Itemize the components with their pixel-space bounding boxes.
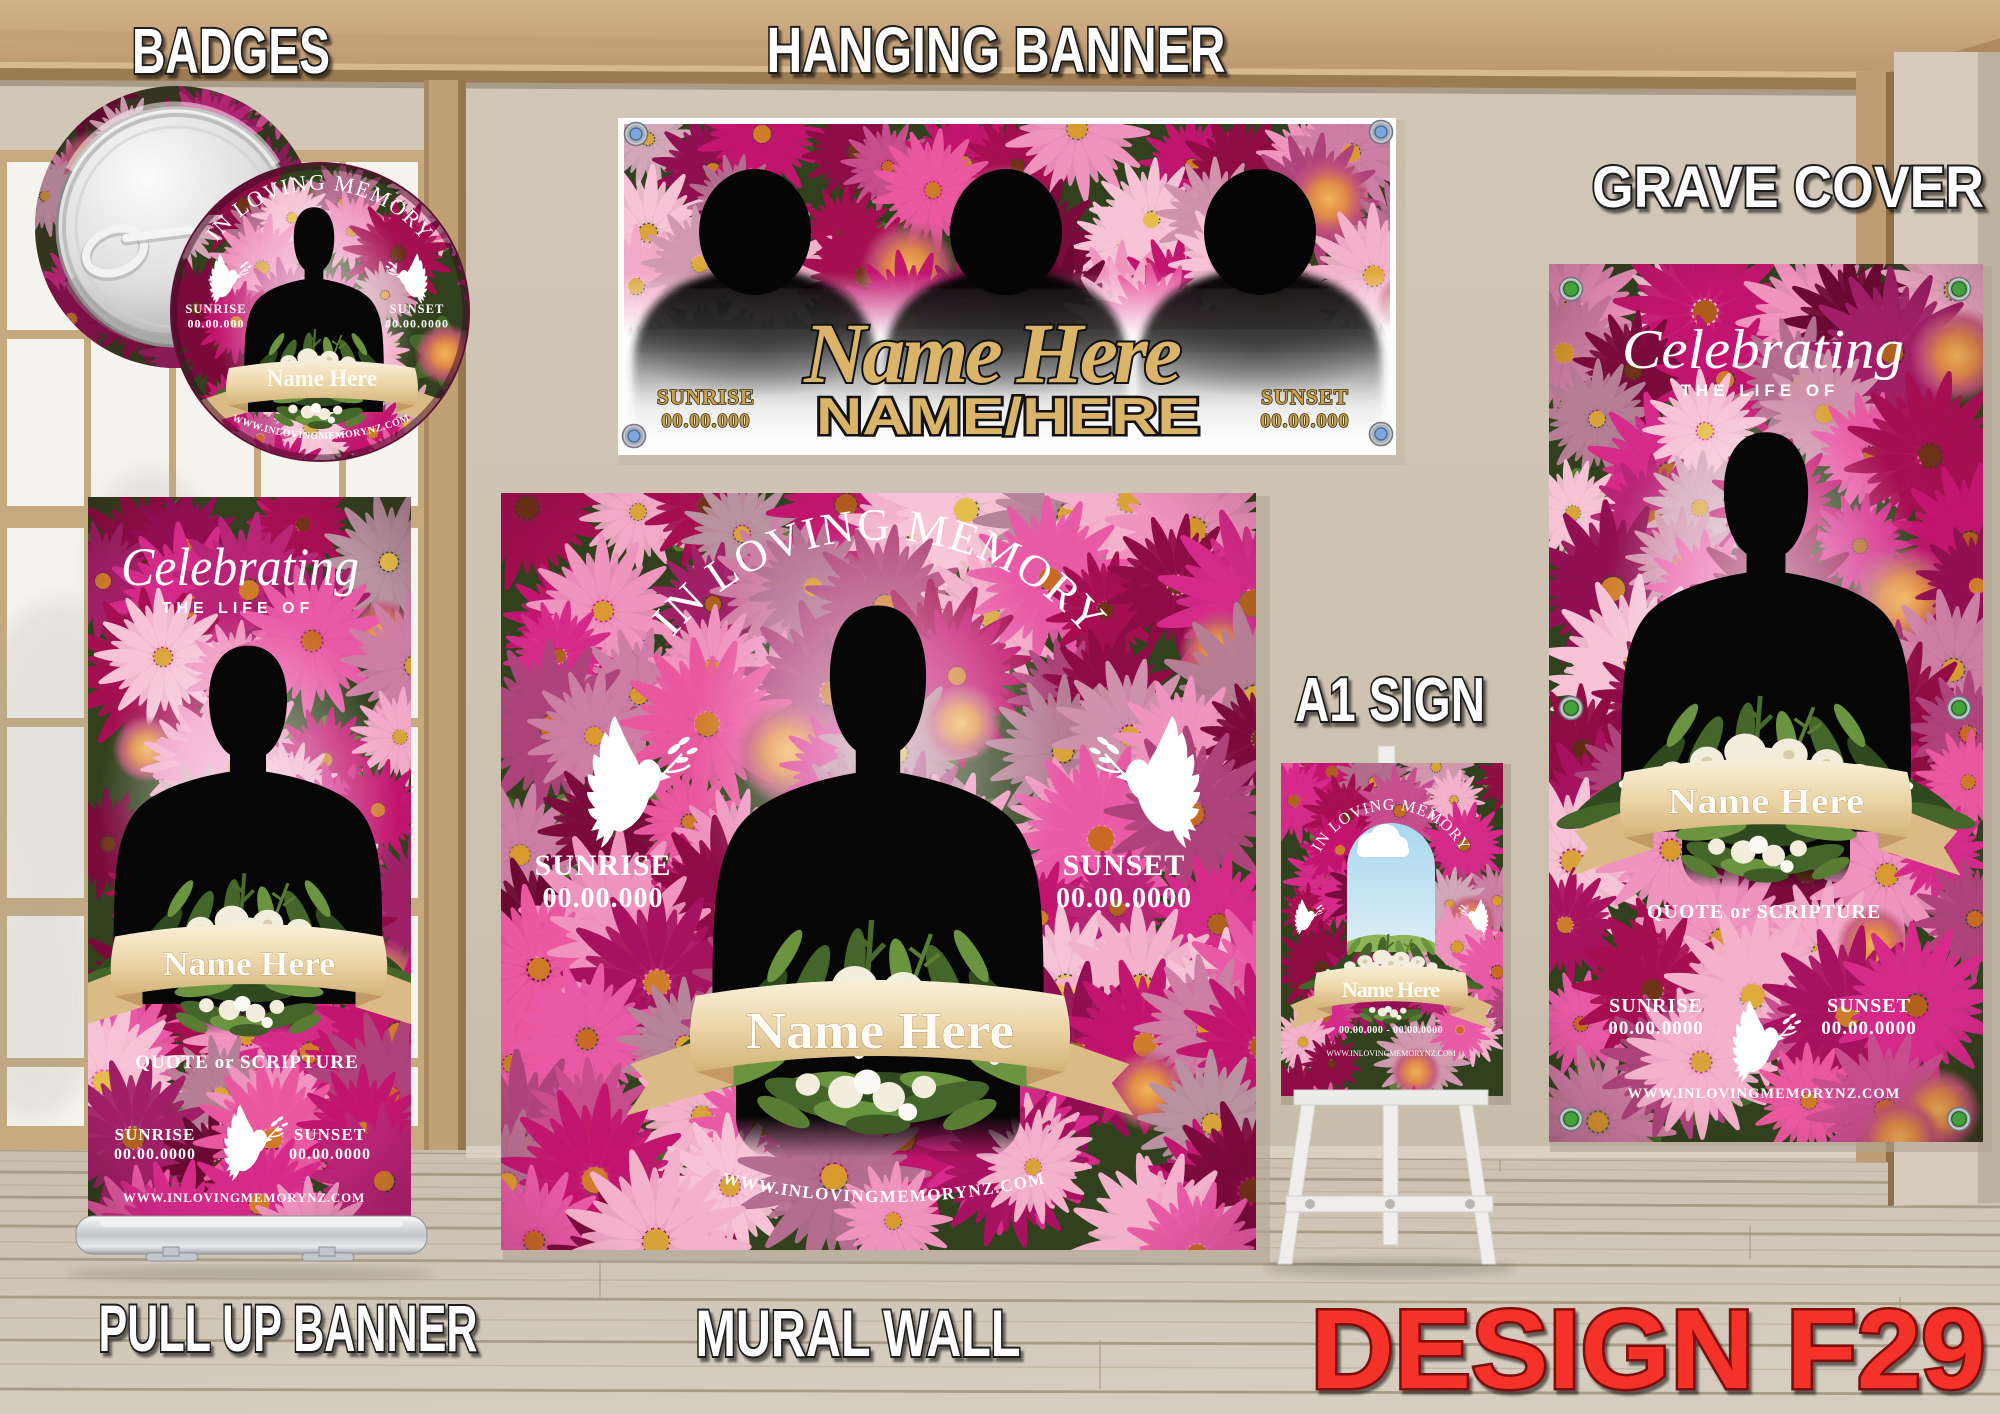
svg-text:GRAVE COVER: GRAVE COVER: [1592, 155, 1984, 220]
svg-text:SUNSET: SUNSET: [1063, 849, 1186, 882]
svg-text:Name Here: Name Here: [163, 946, 335, 983]
svg-text:Celebrating: Celebrating: [1622, 319, 1904, 381]
svg-text:PULL UP BANNER: PULL UP BANNER: [99, 1291, 478, 1365]
svg-text:BADGES: BADGES: [132, 15, 330, 87]
svg-text:00.00.0000: 00.00.0000: [1056, 883, 1192, 914]
svg-text:A1 SIGN: A1 SIGN: [1295, 666, 1485, 735]
svg-text:SUNRISE: SUNRISE: [1609, 995, 1703, 1017]
svg-text:00.00.0000: 00.00.0000: [289, 1146, 371, 1163]
svg-text:SUNRISE: SUNRISE: [185, 302, 246, 316]
svg-text:SUNRISE: SUNRISE: [534, 849, 671, 882]
svg-text:WWW.INLOVINGMEMORYNZ.COM: WWW.INLOVINGMEMORYNZ.COM: [1628, 1086, 1901, 1102]
svg-text:SUNSET: SUNSET: [1261, 385, 1349, 409]
svg-text:DESIGN F29: DESIGN F29: [1311, 1287, 1986, 1412]
svg-text:SUNRISE: SUNRISE: [115, 1125, 196, 1144]
svg-text:00.00.000: 00.00.000: [543, 883, 664, 914]
svg-text:00.00.000: 00.00.000: [1261, 410, 1350, 432]
svg-text:WWW.INLOVINGMEMORYNZ.COM: WWW.INLOVINGMEMORYNZ.COM: [1326, 1049, 1455, 1058]
svg-text:Name Here: Name Here: [267, 366, 377, 392]
svg-text:Name Here: Name Here: [746, 1003, 1014, 1060]
svg-text:00.00.000: 00.00.000: [188, 317, 245, 331]
svg-text:QUOTE or SCRIPTURE: QUOTE or SCRIPTURE: [135, 1052, 359, 1073]
svg-text:SUNSET: SUNSET: [294, 1125, 366, 1144]
svg-text:Name Here: Name Here: [1668, 781, 1864, 821]
svg-text:Name Here: Name Here: [1342, 977, 1440, 1002]
svg-text:WWW.INLOVINGMEMORYNZ.COM: WWW.INLOVINGMEMORYNZ.COM: [123, 1190, 365, 1205]
svg-text:00.00.0000: 00.00.0000: [1821, 1018, 1917, 1039]
svg-text:Name Here: Name Here: [803, 305, 1182, 401]
svg-text:00.00.0000: 00.00.0000: [114, 1146, 196, 1163]
svg-text:SUNRISE: SUNRISE: [657, 385, 755, 409]
svg-text:SUNSET: SUNSET: [390, 302, 445, 316]
svg-text:00.00.000 - 00.00.0000: 00.00.000 - 00.00.0000: [1339, 1025, 1443, 1036]
svg-text:MURAL WALL: MURAL WALL: [696, 1296, 1021, 1370]
svg-text:SUNSET: SUNSET: [1827, 995, 1911, 1017]
svg-text:HANGING BANNER: HANGING BANNER: [767, 14, 1226, 86]
svg-text:Celebrating: Celebrating: [121, 537, 359, 597]
svg-text:00.00.0000: 00.00.0000: [385, 317, 449, 331]
svg-text:00.00.000: 00.00.000: [662, 410, 751, 432]
svg-text:THE LIFE OF: THE LIFE OF: [1681, 381, 1840, 400]
svg-text:QUOTE or SCRIPTURE: QUOTE or SCRIPTURE: [1647, 901, 1881, 923]
svg-text:00.00.0000: 00.00.0000: [1608, 1018, 1704, 1039]
svg-text:NAME/HERE: NAME/HERE: [816, 388, 1200, 446]
svg-text:THE LIFE OF: THE LIFE OF: [162, 600, 315, 617]
